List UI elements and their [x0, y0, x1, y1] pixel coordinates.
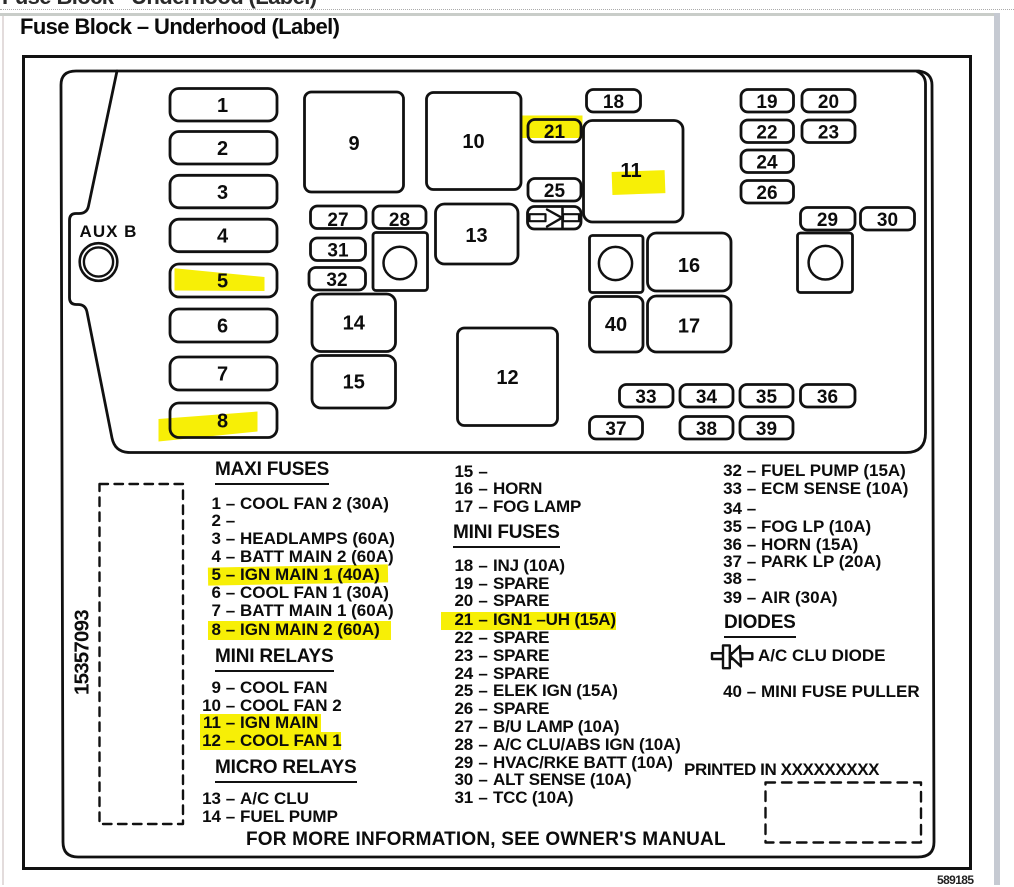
svg-text:38: 38	[696, 419, 717, 440]
svg-text:19: 19	[756, 92, 777, 113]
svg-text:24: 24	[756, 153, 778, 174]
svg-text:18: 18	[603, 92, 624, 113]
svg-text:30: 30	[877, 210, 898, 231]
svg-text:1: 1	[217, 95, 228, 117]
svg-text:20: 20	[818, 92, 839, 113]
svg-text:15: 15	[343, 372, 365, 394]
svg-text:39: 39	[756, 419, 777, 440]
svg-text:9: 9	[348, 133, 359, 155]
svg-text:3: 3	[217, 182, 228, 204]
svg-text:32: 32	[326, 270, 347, 291]
svg-text:35: 35	[756, 387, 778, 408]
svg-text:27: 27	[327, 210, 348, 231]
svg-text:16: 16	[678, 255, 700, 277]
svg-text:AUX B: AUX B	[80, 222, 138, 241]
svg-text:26: 26	[756, 183, 777, 204]
svg-text:14: 14	[343, 313, 366, 335]
svg-text:28: 28	[389, 210, 410, 231]
svg-text:11: 11	[620, 160, 641, 182]
svg-text:25: 25	[544, 181, 566, 202]
svg-text:4: 4	[217, 226, 229, 248]
svg-text:33: 33	[635, 387, 656, 408]
svg-text:29: 29	[817, 210, 838, 231]
svg-text:10: 10	[462, 131, 484, 153]
svg-text:21: 21	[544, 122, 566, 143]
svg-text:23: 23	[818, 123, 839, 144]
svg-text:13: 13	[465, 225, 487, 247]
svg-text:31: 31	[327, 241, 349, 262]
svg-text:34: 34	[696, 387, 718, 408]
svg-text:36: 36	[817, 387, 838, 408]
svg-text:22: 22	[756, 123, 777, 144]
svg-text:15357093: 15357093	[71, 610, 94, 695]
svg-text:12: 12	[496, 367, 518, 389]
svg-text:8: 8	[217, 410, 228, 432]
svg-text:2: 2	[217, 138, 228, 160]
svg-text:5: 5	[217, 271, 228, 293]
svg-text:37: 37	[605, 419, 626, 440]
svg-text:7: 7	[217, 364, 228, 386]
svg-text:6: 6	[217, 316, 228, 338]
svg-text:17: 17	[678, 316, 700, 338]
svg-text:40: 40	[605, 314, 627, 336]
